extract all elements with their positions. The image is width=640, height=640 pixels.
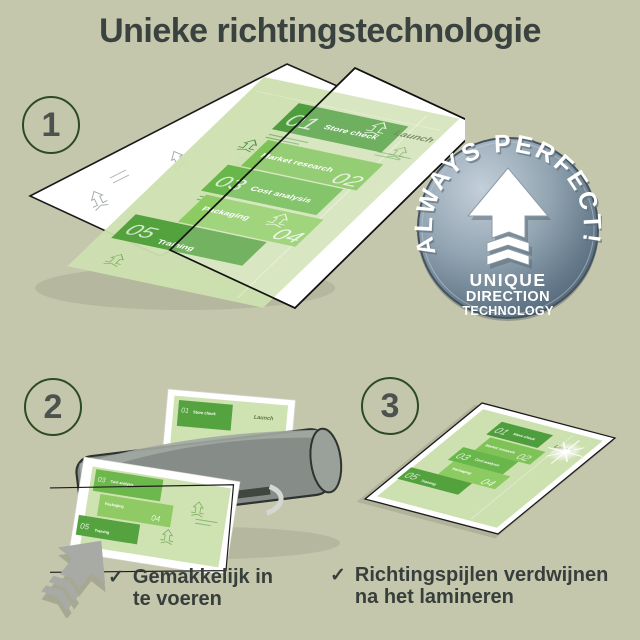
product-feature-panel: Unieke richtingstechnologie 1 2 3 <box>0 0 640 640</box>
mini-block-03-number: 03 <box>97 476 106 484</box>
step-1-illustration: 01 Store check Market research 02 03 Cos… <box>15 58 465 358</box>
check-icon: ✓ <box>330 564 346 588</box>
badge-line-technology: TECHNOLOGY <box>462 304 554 318</box>
mini-block-01 <box>177 400 233 431</box>
page-title: Unieke richtingstechnologie <box>0 12 640 51</box>
benefit-easy-feeding: ✓ Gemakkelijk in te voeren <box>108 566 273 611</box>
step-3-illustration: 01 Store check Market research 02 03 Cos… <box>348 392 623 557</box>
check-icon: ✓ <box>108 566 124 590</box>
badge-line-direction: DIRECTION <box>466 289 550 305</box>
benefit-2-line-1: Richtingspijlen verdwijnen <box>355 564 608 586</box>
benefit-1-line-1: Gemakkelijk in <box>133 566 273 588</box>
benefit-arrows-disappear: ✓ Richtingspijlen verdwijnen na het lami… <box>330 564 608 609</box>
badge-line-unique: UNIQUE <box>469 270 546 290</box>
benefit-1-line-2: te voeren <box>133 588 273 610</box>
laminated-document: 01 Store check Market research 02 03 Cos… <box>357 402 617 538</box>
always-perfect-badge: ALWAYS PERFECT! ALWAYS PERFECT! UNIQUE D… <box>414 134 602 322</box>
mini-block-01-number: 01 <box>181 407 189 415</box>
benefit-2-line-2: na het lamineren <box>355 586 608 608</box>
